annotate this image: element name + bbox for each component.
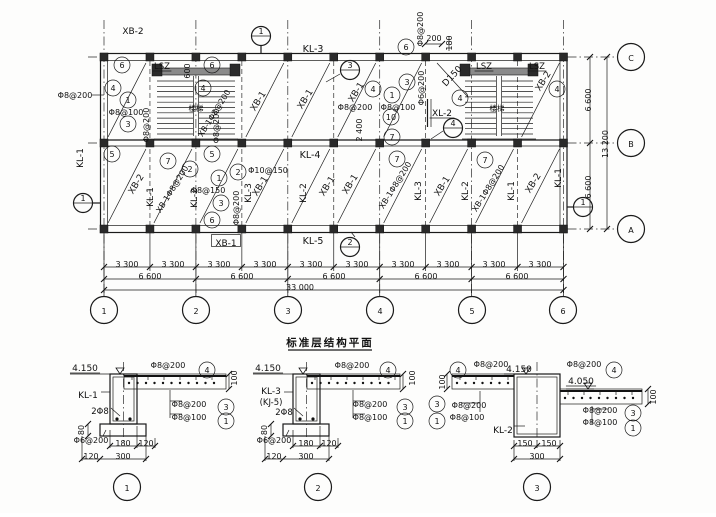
label-kl2: KL-2 (190, 188, 200, 208)
label-kl3: KL-3 (261, 387, 281, 397)
label-xb1-diag: XB-1 (296, 88, 316, 111)
svg-text:C: C (628, 54, 634, 63)
svg-text:Φ8@100: Φ8@100 (450, 413, 485, 422)
label-stair: 楼梯 (189, 103, 204, 113)
svg-text:KL-3: KL-3 (303, 44, 324, 55)
svg-text:1: 1 (258, 27, 263, 36)
callout-3: 3 (218, 399, 234, 415)
callout-3: 3 (397, 399, 413, 415)
callout-3: 3 (399, 74, 415, 90)
svg-text:XB-1: XB-1 (249, 90, 269, 113)
svg-text:3 300: 3 300 (437, 260, 460, 269)
dim-300: 300 (115, 452, 130, 461)
svg-text:LSZ: LSZ (154, 62, 170, 72)
svg-text:3 300: 3 300 (529, 260, 552, 269)
svg-text:3: 3 (223, 403, 228, 412)
dim-80: 80 (77, 425, 86, 435)
grid-bubble-4: 4 (367, 297, 394, 324)
callout-5: 5 (104, 146, 120, 162)
svg-text:2Φ8: 2Φ8 (91, 407, 109, 417)
svg-text:7: 7 (389, 133, 394, 142)
svg-text:3: 3 (218, 199, 223, 208)
label-xb1-boxed: XB-1 (212, 235, 241, 250)
svg-text:楼梯: 楼梯 (490, 103, 505, 113)
svg-text:7: 7 (482, 156, 487, 165)
label-rebar: Φ6@200 (74, 436, 109, 445)
svg-text:4: 4 (204, 366, 209, 375)
svg-text:Φ8@200: Φ8@200 (567, 360, 602, 369)
svg-text:4: 4 (385, 366, 390, 375)
section-marker-3: 3 (341, 61, 360, 80)
label-rebar: Φ8@200 (172, 400, 207, 409)
grid-bubble-c: C (618, 44, 645, 71)
svg-text:4: 4 (611, 366, 616, 375)
section-marker-4: 4 (444, 119, 463, 138)
label-xb1-diag: XB-1Φ8@200 (470, 163, 506, 213)
svg-text:KL-3: KL-3 (414, 181, 424, 201)
svg-text:2: 2 (193, 307, 198, 316)
grid-bubble-2: 2 (183, 297, 210, 324)
svg-text:3: 3 (402, 403, 407, 412)
svg-text:7: 7 (165, 157, 170, 166)
label-xb1-diag: XB-1 (433, 175, 453, 198)
svg-text:180: 180 (115, 439, 130, 448)
svg-text:Φ8@200: Φ8@200 (335, 361, 370, 370)
level-mark: 4.050 (566, 377, 596, 387)
svg-text:600: 600 (183, 63, 192, 78)
labels-layer: XB-21KL-36Φ8@2002001806LSZ6006441Φ8@1003… (58, 12, 658, 501)
svg-text:150: 150 (517, 439, 532, 448)
svg-text:XL-2: XL-2 (432, 109, 452, 119)
svg-text:LSZ: LSZ (529, 62, 545, 72)
svg-text:100: 100 (438, 374, 447, 389)
svg-text:XB-1Φ8@200: XB-1Φ8@200 (154, 164, 190, 214)
svg-text:1: 1 (223, 417, 228, 426)
section-marker-1-right: 1 (574, 198, 593, 217)
svg-text:Φ8@200: Φ8@200 (452, 401, 487, 410)
label-kl3: KL-3 (303, 44, 324, 55)
svg-text:2Φ8: 2Φ8 (275, 408, 293, 418)
svg-text:1: 1 (402, 417, 407, 426)
dim-120: 120 (138, 439, 153, 448)
dim-13200-right: 13 200 (601, 130, 610, 158)
dim-3300: 3 300 (392, 260, 415, 269)
callout-1: 1 (429, 413, 445, 429)
svg-text:1: 1 (101, 307, 106, 316)
label-rebar: Φ8@100 (109, 108, 144, 117)
label-rebar: Φ8@200 (338, 103, 373, 112)
svg-text:4.050: 4.050 (568, 377, 594, 387)
grid-bubble-3: 3 (275, 297, 302, 324)
grid-bubble-1: 1 (91, 297, 118, 324)
svg-text:1: 1 (124, 484, 129, 493)
label-kl5: KL-5 (303, 236, 324, 247)
dim-33000: 33 000 (286, 283, 314, 292)
callout-7: 7 (384, 129, 400, 145)
svg-text:3: 3 (125, 120, 130, 129)
section-marker-1-top: 1 (252, 27, 271, 46)
dim-6600: 6 600 (231, 272, 254, 281)
svg-text:Φ8@100: Φ8@100 (172, 413, 207, 422)
svg-text:4: 4 (110, 84, 115, 93)
drawing-title: 标准层结构平面 (285, 336, 374, 349)
svg-text:6 600: 6 600 (231, 272, 254, 281)
dim-150: 150 (541, 439, 556, 448)
svg-text:1: 1 (216, 174, 221, 183)
svg-text:KL-2: KL-2 (299, 183, 309, 203)
label-rebar: Φ8@200 (232, 191, 241, 226)
svg-text:KL-1: KL-1 (554, 168, 564, 188)
svg-text:KL-2: KL-2 (190, 188, 200, 208)
grid-bubble-5: 5 (459, 297, 486, 324)
svg-text:13 200: 13 200 (601, 130, 610, 158)
svg-text:80: 80 (77, 425, 86, 435)
callout-1: 1 (625, 420, 641, 436)
dim-120: 120 (266, 452, 281, 461)
label-kl1: KL-1 (146, 187, 156, 207)
grid-bubble-6: 6 (550, 297, 577, 324)
dim-6600: 6 600 (506, 272, 529, 281)
drawing-sheet: XB-21KL-36Φ8@2002001806LSZ6006441Φ8@1003… (0, 0, 716, 513)
svg-text:Φ8@200: Φ8@200 (338, 103, 373, 112)
svg-text:Φ8@100: Φ8@100 (583, 418, 618, 427)
svg-text:5: 5 (109, 150, 114, 159)
svg-text:XB-1: XB-1 (347, 81, 367, 104)
svg-text:3 300: 3 300 (346, 260, 369, 269)
callout-4: 4 (549, 81, 565, 97)
svg-text:4: 4 (455, 366, 460, 375)
dim-3300: 3 300 (437, 260, 460, 269)
dim-100: 100 (438, 374, 447, 389)
label-kj5: (KJ-5) (260, 398, 283, 408)
svg-text:KL-4: KL-4 (300, 150, 321, 161)
svg-text:300: 300 (115, 452, 130, 461)
svg-text:A: A (628, 226, 634, 235)
grid-bubble-b: B (618, 130, 645, 157)
callout-3: 3 (120, 116, 136, 132)
svg-text:4: 4 (554, 85, 559, 94)
svg-text:100: 100 (230, 370, 239, 385)
label-xb1-diag: XB-1 (251, 175, 271, 198)
svg-text:3: 3 (630, 409, 635, 418)
dim-150: 150 (517, 439, 532, 448)
label-rebar: Φ8@200 (583, 406, 618, 415)
svg-text:150: 150 (541, 439, 556, 448)
svg-text:Φ10@150: Φ10@150 (248, 166, 288, 175)
label-xb1-diag: XB-1 (347, 81, 367, 104)
callout-2: 2 (230, 164, 246, 180)
svg-text:KL-3: KL-3 (261, 387, 281, 397)
dim-100: 100 (230, 370, 239, 385)
svg-text:XB-2: XB-2 (122, 27, 143, 37)
callout-7: 7 (160, 153, 176, 169)
svg-text:Φ8@200: Φ8@200 (232, 191, 241, 226)
svg-text:1: 1 (125, 96, 130, 105)
label-kl4: KL-4 (300, 150, 321, 161)
svg-text:80: 80 (260, 425, 269, 435)
dim-6600-right: 6 600 (584, 176, 593, 199)
dim-120: 120 (321, 439, 336, 448)
svg-text:Φ8@200: Φ8@200 (416, 12, 425, 47)
callout-6: 6 (114, 57, 130, 73)
svg-text:Φ8@100: Φ8@100 (353, 413, 388, 422)
callout-4: 4 (606, 362, 622, 378)
dim-6600: 6 600 (323, 272, 346, 281)
svg-text:3: 3 (534, 484, 539, 493)
svg-text:Φ8@200: Φ8@200 (474, 360, 509, 369)
svg-text:KL-1: KL-1 (78, 391, 98, 401)
label-stair: 楼梯 (490, 103, 505, 113)
svg-text:6 600: 6 600 (506, 272, 529, 281)
svg-text:1: 1 (389, 91, 394, 100)
label-rebar: Φ8@200 (353, 400, 388, 409)
label-rebar: Φ8@200 (151, 361, 186, 370)
dim-3300: 3 300 (300, 260, 323, 269)
svg-text:KL-5: KL-5 (303, 236, 324, 247)
label-xb1-diag: XB-1Φ8@200 (377, 160, 413, 210)
svg-text:120: 120 (138, 439, 153, 448)
svg-text:4.150: 4.150 (506, 365, 532, 375)
label-rebar: Φ8@200 (416, 12, 425, 47)
svg-text:4: 4 (377, 307, 382, 316)
detail-bubble-3: 3 (524, 474, 551, 501)
label-kl3: KL-3 (414, 181, 424, 201)
svg-text:LSZ: LSZ (476, 62, 492, 72)
svg-text:3 300: 3 300 (300, 260, 323, 269)
detail-bubble-2: 2 (305, 474, 332, 501)
structural-drawing: XB-21KL-36Φ8@2002001806LSZ6006441Φ8@1003… (0, 0, 716, 513)
callout-1: 1 (211, 170, 227, 186)
svg-text:XB-1: XB-1 (433, 175, 453, 198)
svg-text:3 300: 3 300 (208, 260, 231, 269)
svg-text:4: 4 (450, 119, 455, 128)
label-kl1: KL-1 (507, 181, 517, 201)
svg-text:KL-2: KL-2 (493, 426, 513, 436)
svg-text:Φ6@200: Φ6@200 (74, 436, 109, 445)
dim-300: 300 (529, 452, 544, 461)
svg-text:6: 6 (560, 307, 565, 316)
label-rebar: Φ10@150 (248, 166, 288, 175)
svg-text:300: 300 (298, 452, 313, 461)
svg-text:6 600: 6 600 (139, 272, 162, 281)
label-rebar: Φ8@100 (583, 418, 618, 427)
svg-text:4.150: 4.150 (72, 364, 98, 374)
svg-text:6: 6 (209, 216, 214, 225)
svg-text:XB-2: XB-2 (127, 173, 147, 196)
svg-text:XB-1: XB-1 (215, 239, 236, 249)
svg-text:Φ8@200: Φ8@200 (353, 400, 388, 409)
svg-text:Φ8@200: Φ8@200 (58, 91, 93, 100)
svg-text:6 600: 6 600 (415, 272, 438, 281)
svg-text:4: 4 (200, 84, 205, 93)
callout-7: 7 (477, 152, 493, 168)
svg-text:1: 1 (80, 194, 85, 203)
svg-text:Φ6@200: Φ6@200 (417, 71, 426, 106)
svg-text:KL-1: KL-1 (507, 181, 517, 201)
svg-text:4.150: 4.150 (255, 364, 281, 374)
svg-text:3 300: 3 300 (483, 260, 506, 269)
svg-text:1: 1 (630, 424, 635, 433)
svg-text:200: 200 (426, 34, 441, 43)
dim-180: 180 (115, 439, 130, 448)
svg-text:6: 6 (209, 61, 214, 70)
svg-text:B: B (628, 140, 634, 149)
label-lsz: LSZ (475, 62, 494, 72)
section-marker-2: 2 (341, 238, 360, 257)
grid-bubble-a: A (618, 216, 645, 243)
callout-3: 3 (429, 396, 445, 412)
label-rebar: Φ8@100 (353, 413, 388, 422)
svg-text:2: 2 (235, 168, 240, 177)
level-mark: 4.150 (253, 364, 283, 374)
dim-300: 300 (298, 452, 313, 461)
callout-3: 3 (625, 405, 641, 421)
svg-text:120: 120 (266, 452, 281, 461)
label-rebar: Φ6@200 (417, 71, 426, 106)
svg-text:3 300: 3 300 (254, 260, 277, 269)
level-mark: 4.150 (504, 365, 534, 375)
callout-4: 4 (452, 90, 468, 106)
svg-text:KL-1: KL-1 (146, 187, 156, 207)
svg-text:Φ8@200: Φ8@200 (172, 400, 207, 409)
svg-text:KL-2: KL-2 (461, 181, 471, 201)
label-rebar: Φ8@200 (58, 91, 93, 100)
svg-text:6 600: 6 600 (584, 176, 593, 199)
svg-text:XB-1Φ8@200: XB-1Φ8@200 (377, 160, 413, 210)
svg-text:100: 100 (649, 389, 658, 404)
svg-text:(KJ-5): (KJ-5) (260, 398, 283, 408)
detail-bubble-1: 1 (114, 474, 141, 501)
svg-text:XB-1Φ8@200: XB-1Φ8@200 (470, 163, 506, 213)
svg-text:3 300: 3 300 (116, 260, 139, 269)
dim-2400: 2 400 (355, 119, 364, 142)
dim-3300: 3 300 (529, 260, 552, 269)
label-xb1-diag: XB-1 (249, 90, 269, 113)
dim-6600-right: 6 600 (584, 89, 593, 112)
dim-120: 120 (83, 452, 98, 461)
svg-text:6 600: 6 600 (584, 89, 593, 112)
label-rebar: Φ8@200 (452, 401, 487, 410)
svg-text:3: 3 (347, 61, 352, 70)
level-mark: 4.150 (70, 364, 100, 374)
label-xl2: XL-2 (430, 109, 455, 119)
label-kl2: KL-2 (493, 426, 513, 436)
svg-text:2: 2 (315, 484, 320, 493)
label-rebar: Φ8@200 (474, 360, 509, 369)
label-rebar: Φ8@100 (172, 413, 207, 422)
callout-6: 6 (398, 39, 414, 55)
dim-180: 180 (445, 35, 454, 50)
svg-text:100: 100 (408, 370, 417, 385)
dim-3300: 3 300 (346, 260, 369, 269)
svg-text:1: 1 (434, 417, 439, 426)
svg-text:3: 3 (285, 307, 290, 316)
dim-3300: 3 300 (116, 260, 139, 269)
callout-1: 1 (384, 87, 400, 103)
label-xb1-diag: XB-1Φ8@200 (154, 164, 190, 214)
dim-200: 200 (426, 34, 441, 43)
drawing-title-group: 标准层结构平面 (285, 336, 374, 350)
section-marker-1-left: 1 (74, 194, 93, 213)
svg-text:180: 180 (445, 35, 454, 50)
svg-text:7: 7 (394, 155, 399, 164)
label-xb1-diag: XB-1 (318, 175, 338, 198)
svg-text:Φ6@200: Φ6@200 (257, 436, 292, 445)
callout-1: 1 (120, 92, 136, 108)
label-rebar: Φ8@200 (335, 361, 370, 370)
label-rebar: Φ6@200 (257, 436, 292, 445)
callout-1: 1 (218, 413, 234, 429)
dim-3300: 3 300 (162, 260, 185, 269)
svg-text:3 300: 3 300 (162, 260, 185, 269)
label-rebar: Φ8@200 (142, 108, 151, 143)
dim-3300: 3 300 (483, 260, 506, 269)
label-rebar: 2Φ8 (275, 408, 293, 418)
svg-text:2: 2 (347, 238, 352, 247)
svg-text:4: 4 (457, 94, 462, 103)
label-rebar: Φ8@200 (567, 360, 602, 369)
svg-text:XB-1: XB-1 (251, 175, 271, 198)
svg-text:10: 10 (386, 113, 396, 122)
svg-text:6: 6 (119, 61, 124, 70)
svg-text:5: 5 (209, 150, 214, 159)
dim-6600: 6 600 (415, 272, 438, 281)
dim-3300: 3 300 (254, 260, 277, 269)
dim-100: 100 (408, 370, 417, 385)
label-kl1: KL-1 (78, 391, 98, 401)
label-rebar: 2Φ8 (91, 407, 109, 417)
dim-3300: 3 300 (208, 260, 231, 269)
callout-1: 1 (397, 413, 413, 429)
label-lsz: LSZ (528, 62, 547, 72)
dim-6600: 6 600 (139, 272, 162, 281)
svg-text:180: 180 (298, 439, 313, 448)
svg-text:4: 4 (370, 85, 375, 94)
label-xb2: XB-2 (122, 27, 143, 37)
svg-text:5: 5 (469, 307, 474, 316)
svg-text:Φ8@200: Φ8@200 (151, 361, 186, 370)
svg-text:33 000: 33 000 (286, 283, 314, 292)
svg-text:KL-1: KL-1 (76, 148, 86, 168)
svg-text:6 600: 6 600 (323, 272, 346, 281)
callout-3: 3 (213, 195, 229, 211)
svg-text:XB-2: XB-2 (524, 172, 544, 195)
svg-text:6: 6 (403, 43, 408, 52)
callout-4: 4 (365, 81, 381, 97)
svg-text:3: 3 (404, 78, 409, 87)
label-kl1: KL-1 (76, 148, 86, 168)
label-kl2: KL-2 (461, 181, 471, 201)
svg-text:300: 300 (529, 452, 544, 461)
callout-5: 5 (204, 146, 220, 162)
svg-text:楼梯: 楼梯 (189, 103, 204, 113)
dim-600: 600 (183, 63, 192, 78)
dim-80: 80 (260, 425, 269, 435)
callout-4: 4 (195, 80, 211, 96)
svg-text:XB-1: XB-1 (296, 88, 316, 111)
svg-text:120: 120 (321, 439, 336, 448)
label-xb2-diag: XB-2 (127, 173, 147, 196)
dim-100: 100 (649, 389, 658, 404)
label-xb2-diag: XB-2 (524, 172, 544, 195)
svg-text:Φ8@100: Φ8@100 (109, 108, 144, 117)
svg-text:2 400: 2 400 (355, 119, 364, 142)
dim-180: 180 (298, 439, 313, 448)
svg-text:XB-1: XB-1 (318, 175, 338, 198)
label-rebar: Φ8@100 (450, 413, 485, 422)
label-lsz: LSZ (153, 62, 172, 72)
label-kl1: KL-1 (554, 168, 564, 188)
